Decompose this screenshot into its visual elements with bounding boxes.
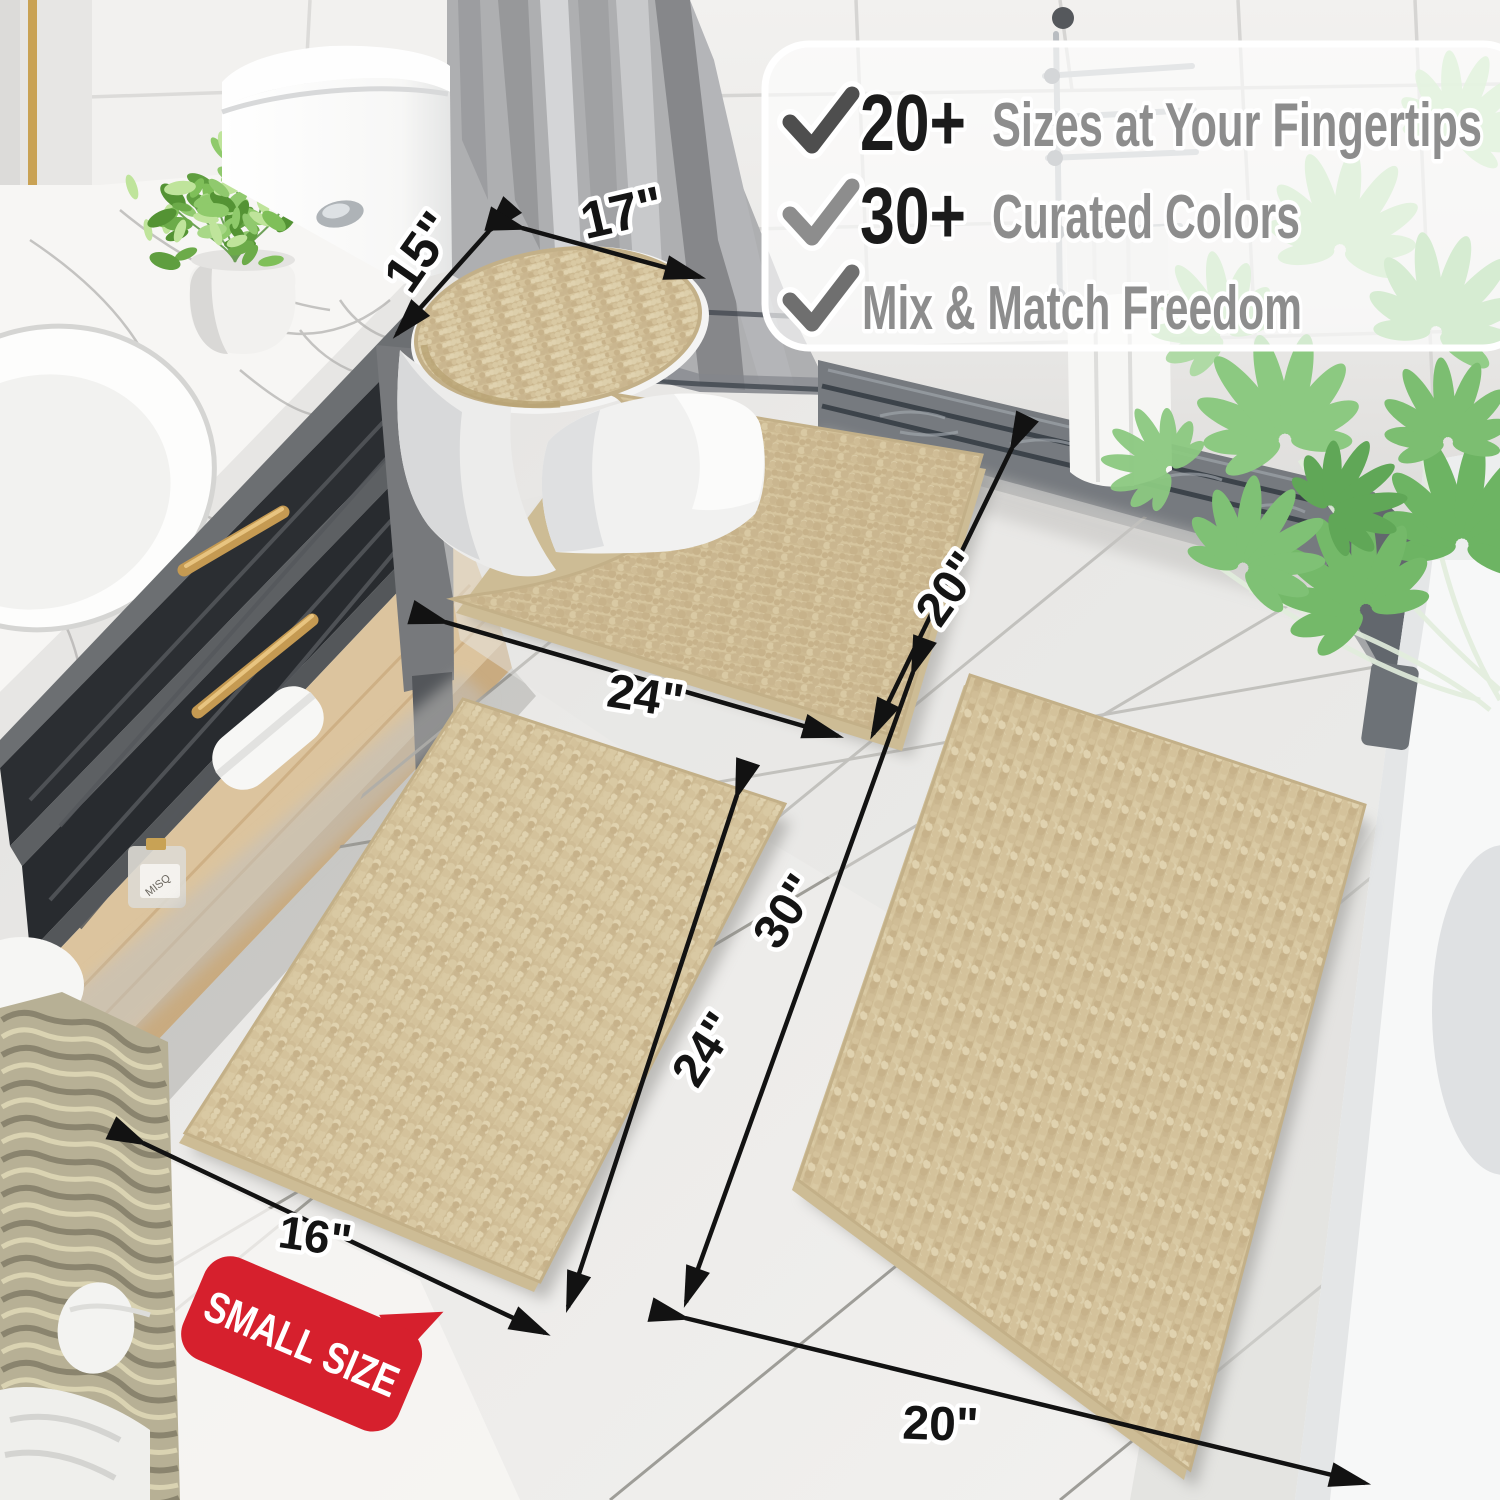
- svg-text:16": 16": [275, 1205, 355, 1267]
- svg-text:20": 20": [902, 1397, 980, 1453]
- svg-text:Curated Colors: Curated Colors: [992, 183, 1300, 252]
- svg-text:30+: 30+: [860, 171, 966, 260]
- svg-text:Mix & Match Freedom: Mix & Match Freedom: [862, 274, 1302, 343]
- svg-text:20+: 20+: [860, 78, 966, 167]
- svg-text:Sizes at Your Fingertips: Sizes at Your Fingertips: [992, 91, 1482, 160]
